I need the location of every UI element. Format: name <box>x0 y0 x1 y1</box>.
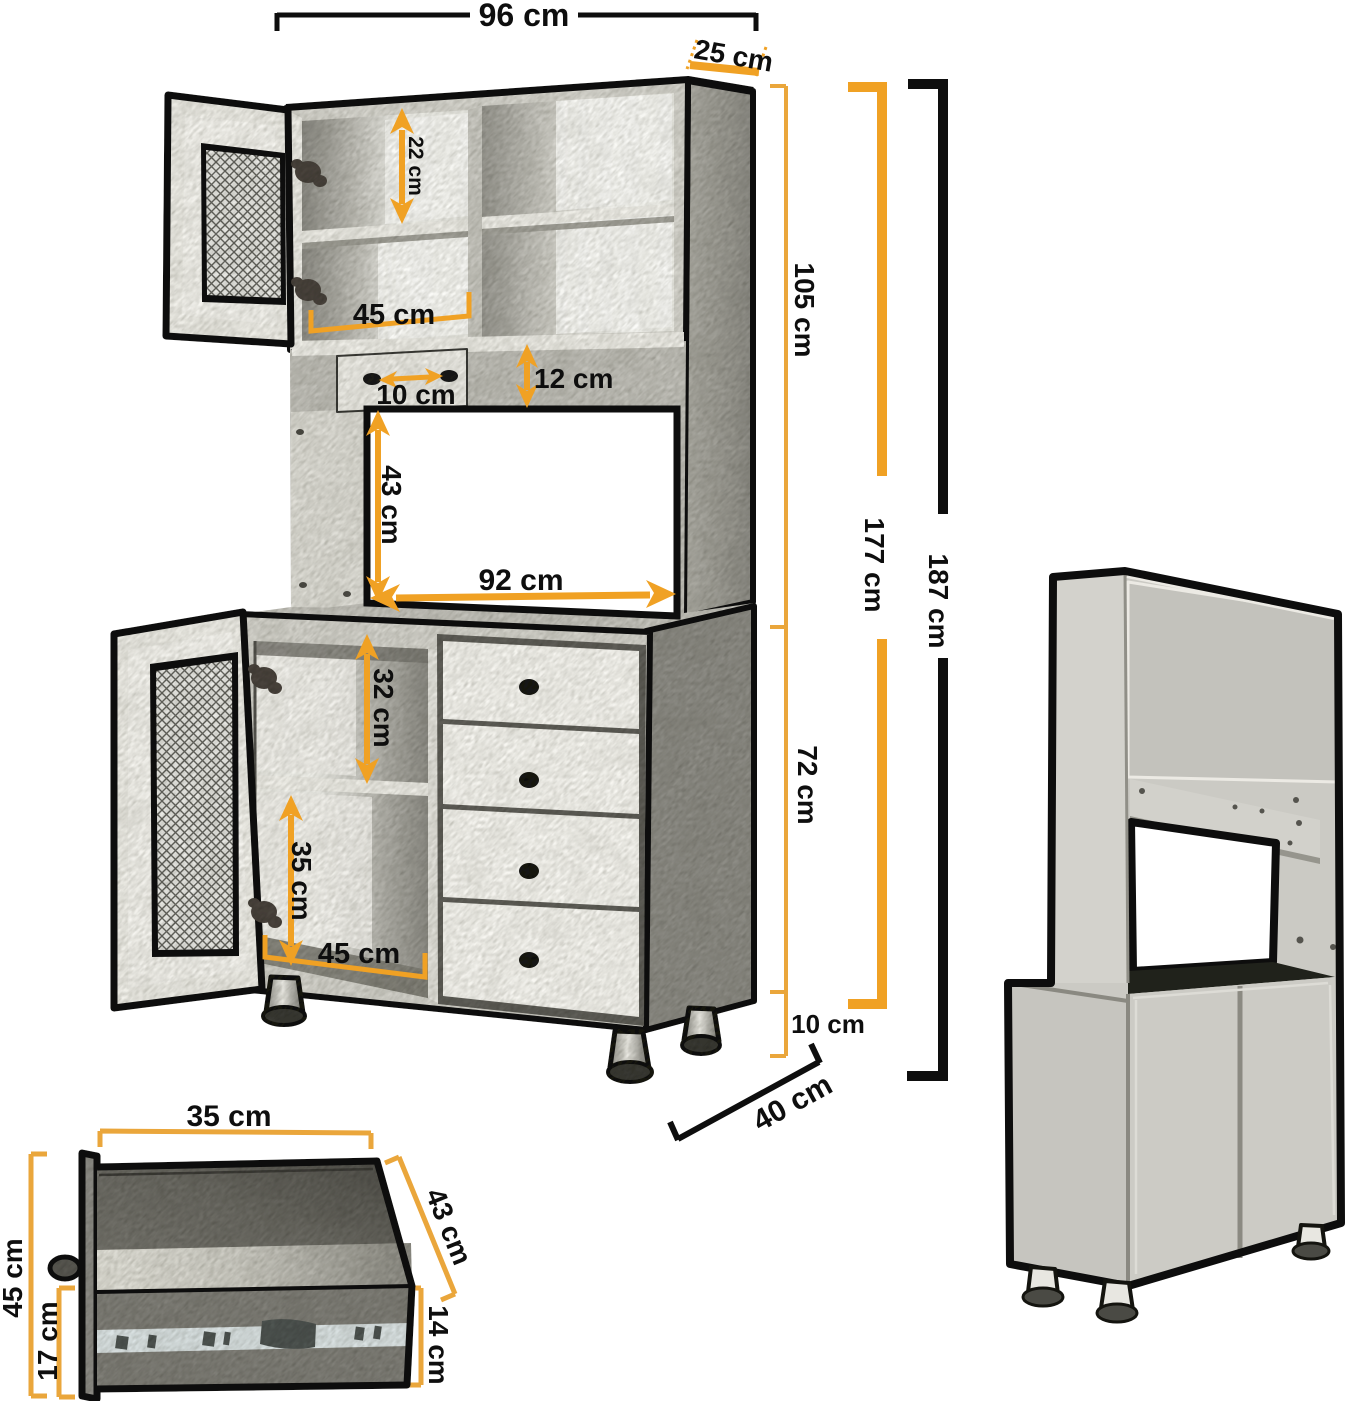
svg-text:92 cm: 92 cm <box>478 564 563 597</box>
svg-text:12 cm: 12 cm <box>534 363 613 394</box>
svg-text:105 cm: 105 cm <box>789 263 820 358</box>
svg-text:45 cm: 45 cm <box>318 938 400 970</box>
svg-text:10 cm: 10 cm <box>376 379 455 410</box>
svg-text:96 cm: 96 cm <box>479 0 570 33</box>
svg-text:45 cm: 45 cm <box>0 1238 28 1317</box>
svg-text:72 cm: 72 cm <box>792 745 823 824</box>
svg-text:17 cm: 17 cm <box>32 1301 63 1380</box>
svg-text:10 cm: 10 cm <box>791 1009 865 1039</box>
svg-text:43 cm: 43 cm <box>376 465 407 544</box>
svg-text:177 cm: 177 cm <box>859 518 890 613</box>
svg-text:45 cm: 45 cm <box>353 299 435 331</box>
svg-text:35 cm: 35 cm <box>186 1100 271 1133</box>
svg-text:22 cm: 22 cm <box>404 136 427 196</box>
svg-text:187 cm: 187 cm <box>923 554 954 649</box>
svg-text:14 cm: 14 cm <box>423 1305 454 1384</box>
svg-text:35 cm: 35 cm <box>286 841 317 920</box>
svg-text:32 cm: 32 cm <box>368 668 399 747</box>
